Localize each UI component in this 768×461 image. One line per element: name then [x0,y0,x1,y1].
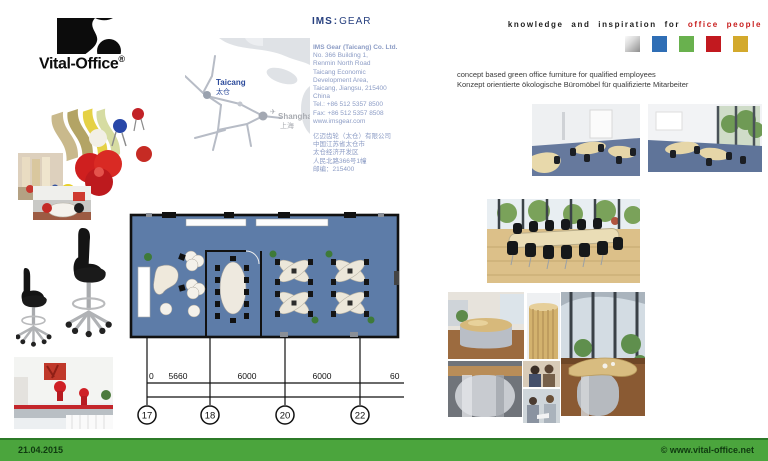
contact-company-zh: 亿迈齿轮（太仓）有限公司 [313,133,425,141]
minor-town-dot [238,102,243,107]
shanghai-label: Shanghai [278,112,310,121]
red-blob-graphic [136,146,152,162]
concept-line-de: Konzept orientierte ökologische Büromöbe… [457,80,688,90]
palette-square-green [679,36,694,52]
tagline-prefix: knowledge and inspiration for [508,20,688,29]
ims-gear-logo: IMS:GEAR [312,16,371,27]
office-photo-1 [532,104,640,176]
concept-statement: concept based green office furniture for… [457,70,688,89]
contact-company: IMS Gear (Taicang) Co. Ltd. [313,44,425,52]
contact-country: China [313,93,425,101]
brochure-page: Vital-Office® IMS:GEAR knowledge and ins… [0,0,768,461]
tagline: knowledge and inspiration for office peo… [508,20,762,29]
contact-address-line: Taicang, Jiangsu, 215400 [313,85,425,93]
grid-bubble: 17 [142,411,153,422]
contact-address-zh: 太仓经济开发区 [313,149,425,157]
concept-line-en: concept based green office furniture for… [457,70,688,80]
contact-phone: Tel.: +86 512 5357 8500 [313,101,425,109]
airplane-icon: ✈ [270,109,276,116]
counter-photo-3 [561,292,645,416]
office-chair-graphic [16,268,52,347]
date-label: 21.04.2015 [18,445,63,455]
people-photo-1 [523,361,560,387]
palette-square-blue [652,36,667,52]
imsgear-url[interactable]: www.imsgear.com [313,118,425,126]
dim-label: 6000 [238,371,257,381]
dim-label: 6000 [313,371,332,381]
footer-bar: 21.04.2015 © www.vital-office.net [0,438,768,461]
floor-plan: 0 5660 6000 6000 60 17 18 20 22 [128,205,404,429]
contact-address-line: Development Area, [313,77,425,85]
counter-photo-4 [448,361,522,417]
brand-color-squares [625,36,748,52]
brand-name: Vital-Office® [37,54,127,73]
shanghai-label-zh: 上海 [280,121,294,130]
office-chair-graphic [66,228,112,337]
vital-office-url[interactable]: © www.vital-office.net [661,445,754,455]
counter-photo-2 [527,293,560,359]
ims-logo-word2: GEAR [339,16,371,27]
ims-logo-separator: : [334,16,338,27]
contact-block: IMS Gear (Taicang) Co. Ltd. No. 366 Buil… [313,44,425,174]
office-photo-2 [648,104,762,172]
counter-photo-1 [448,292,524,359]
contact-address-zh: 人民北路366号1幢 [313,158,425,166]
conference-room-photo [487,199,640,283]
taicang-label-zh: 太仓 [216,87,230,96]
grid-bubble: 18 [205,411,216,422]
dim-label: 5660 [169,371,188,381]
contact-address-line: Taicang Economic [313,69,425,77]
grid-bubble: 20 [280,411,291,422]
contact-postcode-zh: 邮编：215400 [313,166,425,174]
palette-square-gold [733,36,748,52]
registered-mark: ® [118,54,124,64]
red-interior-photo [14,357,113,429]
shanghai-dot [259,112,268,121]
vital-office-logo: Vital-Office® [57,18,131,71]
dim-label: 0 [149,371,154,381]
contact-address-line: Renmin North Road [313,60,425,68]
dim-label: 60 [390,371,400,381]
tagline-highlight: office people [688,20,762,29]
grid-bubble: 22 [355,411,366,422]
palette-square-silver [625,36,640,52]
red-stool-graphic [132,108,144,131]
ims-logo-word1: IMS [312,16,333,27]
palette-square-red [706,36,721,52]
contact-fax: Fax: +86 512 5357 8508 [313,110,425,118]
people-photo-2 [523,389,560,423]
contact-address-line: No. 366 Building 1, [313,52,425,60]
taicang-label: Taicang [216,78,246,87]
chairs-photo [16,220,120,352]
taicang-dot [203,91,211,99]
map-roads [185,56,281,150]
location-map: Taicang 太仓 ✈ Shanghai 上海 [185,38,310,158]
